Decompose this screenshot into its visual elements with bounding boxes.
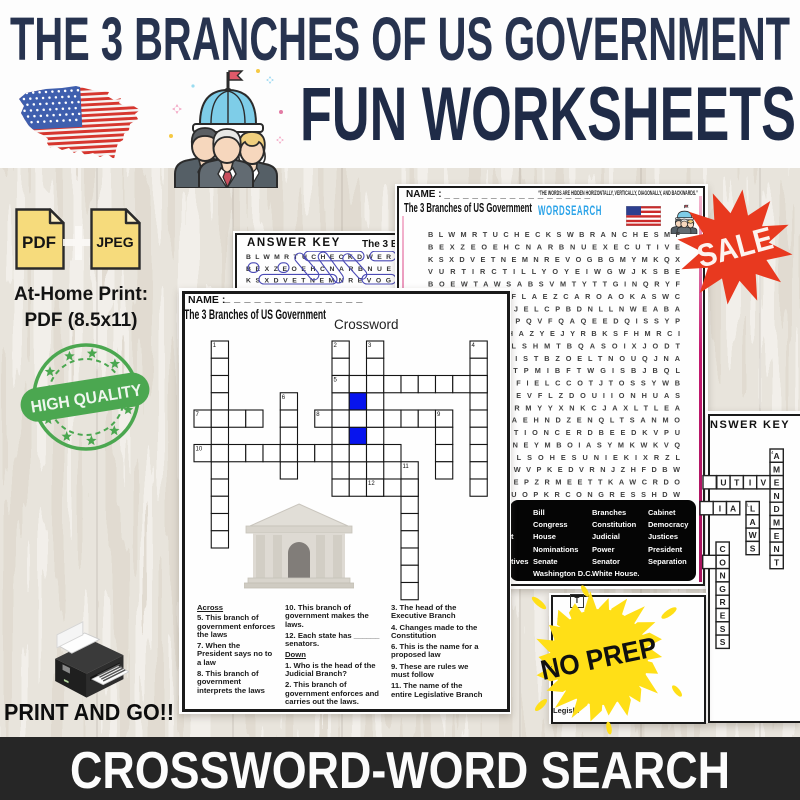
svg-text:10: 10 — [196, 447, 203, 453]
svg-text:12: 12 — [368, 481, 375, 487]
svg-text:PRINT AND GO!!: PRINT AND GO!! — [4, 699, 174, 725]
svg-text:JPEG: JPEG — [96, 234, 133, 250]
svg-text:11: 11 — [403, 464, 410, 470]
svg-text:PDF: PDF — [22, 233, 56, 252]
svg-text:CROSSWORD-WORD SEARCH: CROSSWORD-WORD SEARCH — [70, 742, 730, 800]
